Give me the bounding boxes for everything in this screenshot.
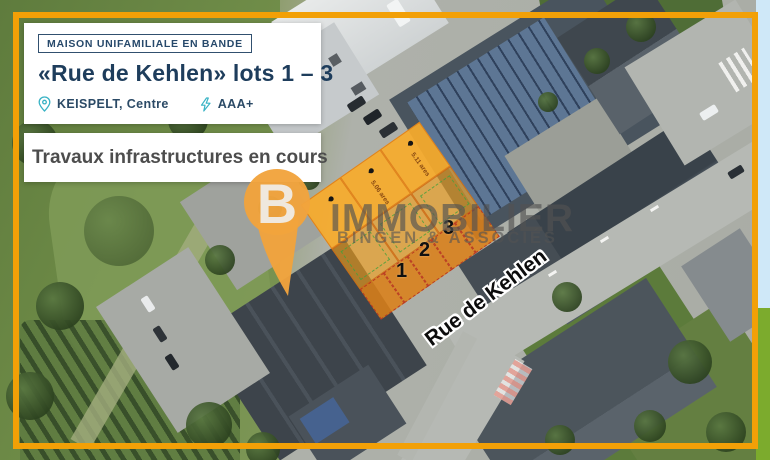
parcel-area-label: 5.11 ares bbox=[409, 151, 430, 178]
tree-blob bbox=[545, 425, 575, 455]
parcel-marker-icon bbox=[408, 140, 413, 145]
property-type-badge: MAISON UNIFAMILIALE EN BANDE bbox=[38, 34, 252, 53]
tree-blob bbox=[205, 245, 235, 275]
brand-initial: B bbox=[257, 172, 297, 235]
listing-title: «Rue de Kehlen» lots 1 – 3 bbox=[38, 60, 321, 87]
tree-blob bbox=[584, 48, 610, 74]
map-decoration bbox=[201, 98, 210, 111]
tree-blob bbox=[626, 12, 656, 42]
lot-number-1: 1 bbox=[396, 260, 407, 283]
page-edge-blue bbox=[756, 0, 770, 310]
map-decoration bbox=[300, 397, 350, 444]
status-text: Travaux infrastructures en cours bbox=[24, 147, 328, 169]
tree-blob bbox=[84, 196, 154, 266]
map-decoration bbox=[43, 100, 47, 104]
energy-class-value: AAA+ bbox=[218, 97, 254, 111]
page-edge-green bbox=[756, 308, 770, 460]
tree-blob bbox=[538, 92, 558, 112]
tree-blob bbox=[186, 402, 232, 448]
brand-balloon-icon: B bbox=[241, 168, 313, 304]
parcel-marker-icon bbox=[368, 168, 373, 173]
listing-card: MAISON UNIFAMILIALE EN BANDE «Rue de Keh… bbox=[24, 23, 321, 124]
listing-location: KEISPELT, Centre bbox=[57, 97, 169, 111]
tree-blob bbox=[706, 412, 746, 452]
tree-blob bbox=[6, 372, 54, 420]
map-decoration: KEISPELT, Centre AAA+ bbox=[38, 96, 321, 112]
tree-blob bbox=[36, 282, 84, 330]
brand-subtitle-watermark: BINGEN & ASSOCIÉS bbox=[337, 229, 558, 248]
listing-photo-stage: 5.06 ares 5.11 ares 1 2 3 Rue de Kehlen … bbox=[0, 0, 770, 460]
tree-blob bbox=[634, 410, 666, 442]
map-pin-icon bbox=[38, 96, 51, 112]
tree-blob bbox=[552, 282, 582, 312]
tree-blob bbox=[246, 432, 280, 460]
tree-blob bbox=[668, 340, 712, 384]
energy-class-icon bbox=[199, 97, 212, 112]
